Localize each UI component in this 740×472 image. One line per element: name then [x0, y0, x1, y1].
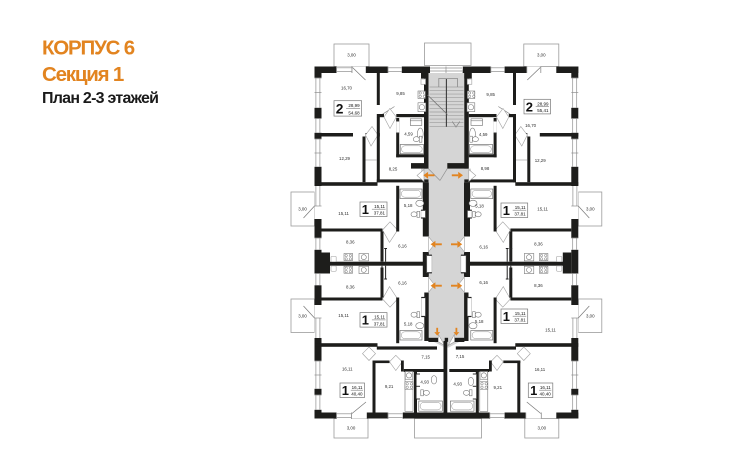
svg-text:28,99: 28,99 [537, 101, 549, 106]
svg-text:40,40: 40,40 [540, 392, 552, 397]
svg-text:55,41: 55,41 [537, 108, 549, 113]
svg-text:3,00: 3,00 [347, 53, 356, 58]
svg-text:15,11: 15,11 [338, 211, 349, 216]
svg-text:8,98: 8,98 [481, 166, 490, 171]
svg-text:5,18: 5,18 [404, 203, 413, 208]
svg-text:7,15: 7,15 [456, 354, 465, 359]
svg-text:37,81: 37,81 [514, 212, 526, 217]
svg-text:3,00: 3,00 [586, 207, 595, 212]
svg-text:28,99: 28,99 [348, 103, 360, 108]
svg-text:1: 1 [362, 202, 369, 217]
svg-text:12,29: 12,29 [535, 158, 547, 163]
svg-text:37,81: 37,81 [374, 321, 386, 326]
svg-text:15,11: 15,11 [374, 315, 385, 320]
svg-text:54,68: 54,68 [348, 110, 360, 115]
svg-text:4,59: 4,59 [479, 132, 488, 137]
svg-text:План 2-3 этажей: План 2-3 этажей [42, 90, 158, 107]
svg-text:7,15: 7,15 [421, 355, 430, 360]
svg-text:5,18: 5,18 [404, 321, 413, 326]
svg-text:1: 1 [342, 383, 349, 398]
svg-text:4,59: 4,59 [404, 131, 413, 136]
svg-text:16,11: 16,11 [540, 385, 551, 390]
svg-text:8,36: 8,36 [346, 240, 355, 245]
svg-text:4,93: 4,93 [420, 380, 429, 385]
svg-text:8,25: 8,25 [389, 167, 398, 172]
svg-text:6,16: 6,16 [479, 245, 488, 250]
svg-text:9,85: 9,85 [396, 91, 405, 96]
svg-text:16,11: 16,11 [535, 367, 546, 372]
svg-text:1: 1 [362, 313, 369, 328]
svg-text:16,11: 16,11 [342, 366, 353, 371]
svg-text:15,11: 15,11 [338, 313, 349, 318]
svg-text:3,00: 3,00 [347, 426, 356, 431]
svg-text:КОРПУС 6: КОРПУС 6 [42, 37, 135, 60]
svg-text:3,00: 3,00 [586, 314, 595, 319]
svg-text:16,11: 16,11 [352, 385, 363, 390]
svg-text:12,29: 12,29 [339, 156, 351, 161]
svg-text:Секция 1: Секция 1 [42, 63, 124, 86]
svg-text:6,16: 6,16 [398, 244, 407, 249]
svg-text:5,18: 5,18 [475, 319, 484, 324]
svg-text:9,21: 9,21 [385, 384, 394, 389]
svg-text:3,00: 3,00 [537, 53, 546, 58]
svg-text:16,70: 16,70 [341, 86, 353, 91]
svg-text:9,85: 9,85 [486, 92, 495, 97]
svg-text:9,21: 9,21 [494, 385, 503, 390]
svg-text:1: 1 [503, 203, 510, 218]
svg-text:4,93: 4,93 [453, 381, 462, 386]
svg-text:37,81: 37,81 [514, 318, 526, 323]
svg-text:2: 2 [336, 102, 344, 117]
svg-text:6,16: 6,16 [398, 281, 407, 286]
svg-text:8,36: 8,36 [346, 285, 355, 290]
svg-text:15,11: 15,11 [545, 327, 556, 332]
svg-text:15,11: 15,11 [515, 205, 526, 210]
svg-text:3,00: 3,00 [538, 426, 547, 431]
svg-text:6,16: 6,16 [479, 280, 488, 285]
svg-text:16,70: 16,70 [525, 123, 537, 128]
svg-text:40,40: 40,40 [351, 392, 363, 397]
svg-text:1: 1 [530, 383, 537, 398]
svg-text:15,11: 15,11 [515, 311, 526, 316]
svg-text:8,36: 8,36 [534, 283, 543, 288]
svg-text:15,11: 15,11 [374, 204, 385, 209]
svg-text:1: 1 [503, 309, 510, 324]
svg-text:15,11: 15,11 [537, 206, 548, 211]
svg-text:2: 2 [526, 100, 533, 115]
svg-text:3,00: 3,00 [298, 207, 307, 212]
svg-text:37,81: 37,81 [374, 211, 386, 216]
svg-text:8,36: 8,36 [534, 242, 543, 247]
svg-text:3,00: 3,00 [298, 314, 307, 319]
svg-text:5,18: 5,18 [475, 203, 484, 208]
